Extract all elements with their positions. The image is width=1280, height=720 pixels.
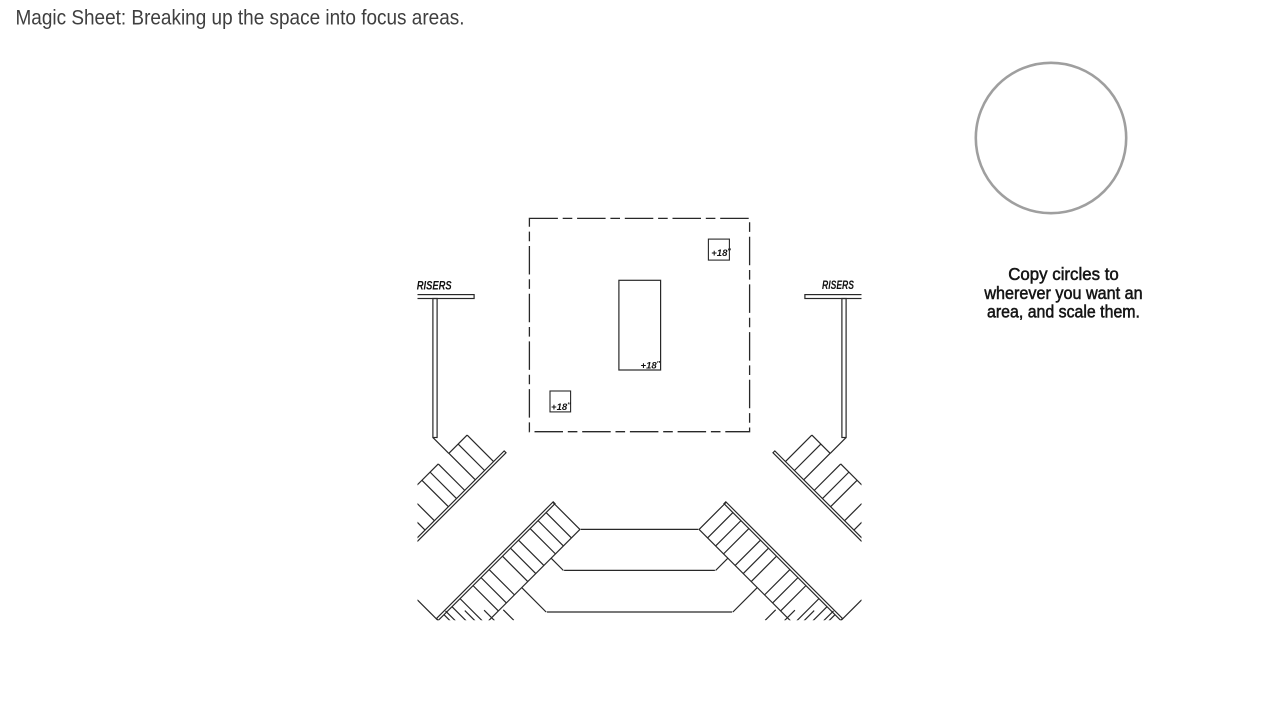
svg-text:wherever you want an: wherever you want an [983, 283, 1142, 303]
svg-text:area, and scale them.: area, and scale them. [987, 302, 1140, 322]
svg-text:RISERS: RISERS [417, 278, 452, 292]
svg-text:Magic Sheet: Breaking up the s: Magic Sheet: Breaking up the space into … [16, 6, 465, 29]
svg-text:RISERS: RISERS [822, 278, 854, 292]
svg-text:Copy circles to: Copy circles to [1008, 264, 1119, 284]
svg-text:+18″: +18″ [711, 248, 731, 259]
